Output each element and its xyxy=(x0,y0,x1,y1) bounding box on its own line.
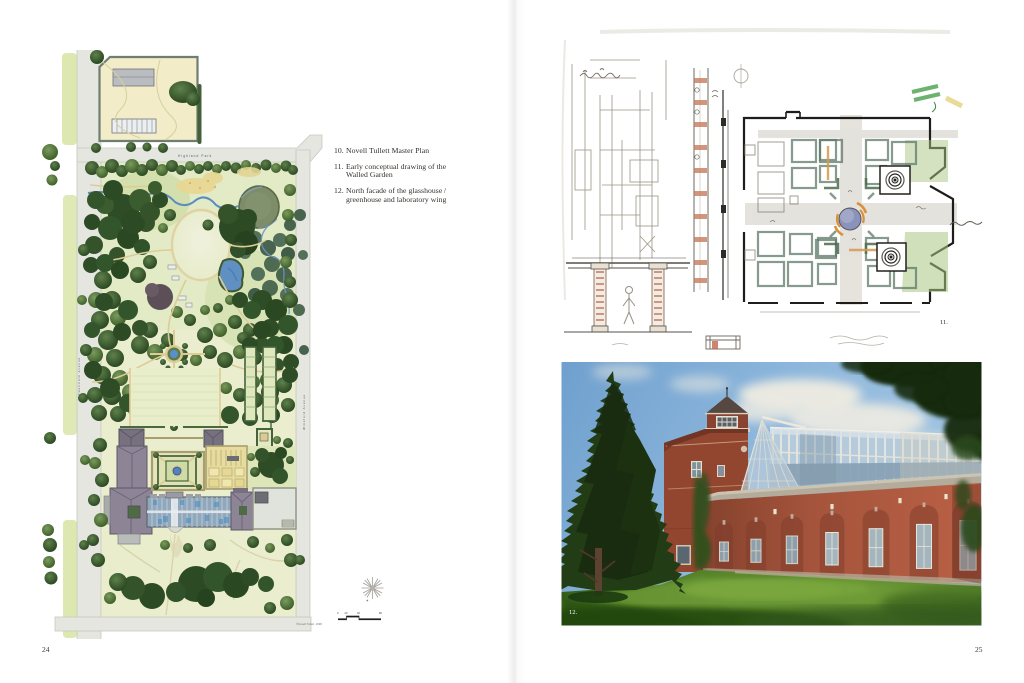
svg-text:80: 80 xyxy=(379,611,382,615)
svg-text:Winsford Avenue: Winsford Avenue xyxy=(302,394,306,430)
svg-text:12.: 12. xyxy=(569,609,578,616)
svg-text:11.: 11. xyxy=(940,319,948,326)
svg-text:20: 20 xyxy=(345,611,348,615)
svg-text:©Novell Tullett, 1998: ©Novell Tullett, 1998 xyxy=(296,622,322,626)
svg-text:Highland Park: Highland Park xyxy=(178,154,212,158)
svg-text:0: 0 xyxy=(337,611,339,615)
svg-text:40: 40 xyxy=(357,611,360,615)
svg-text:Twentieth Avenue: Twentieth Avenue xyxy=(77,357,81,395)
